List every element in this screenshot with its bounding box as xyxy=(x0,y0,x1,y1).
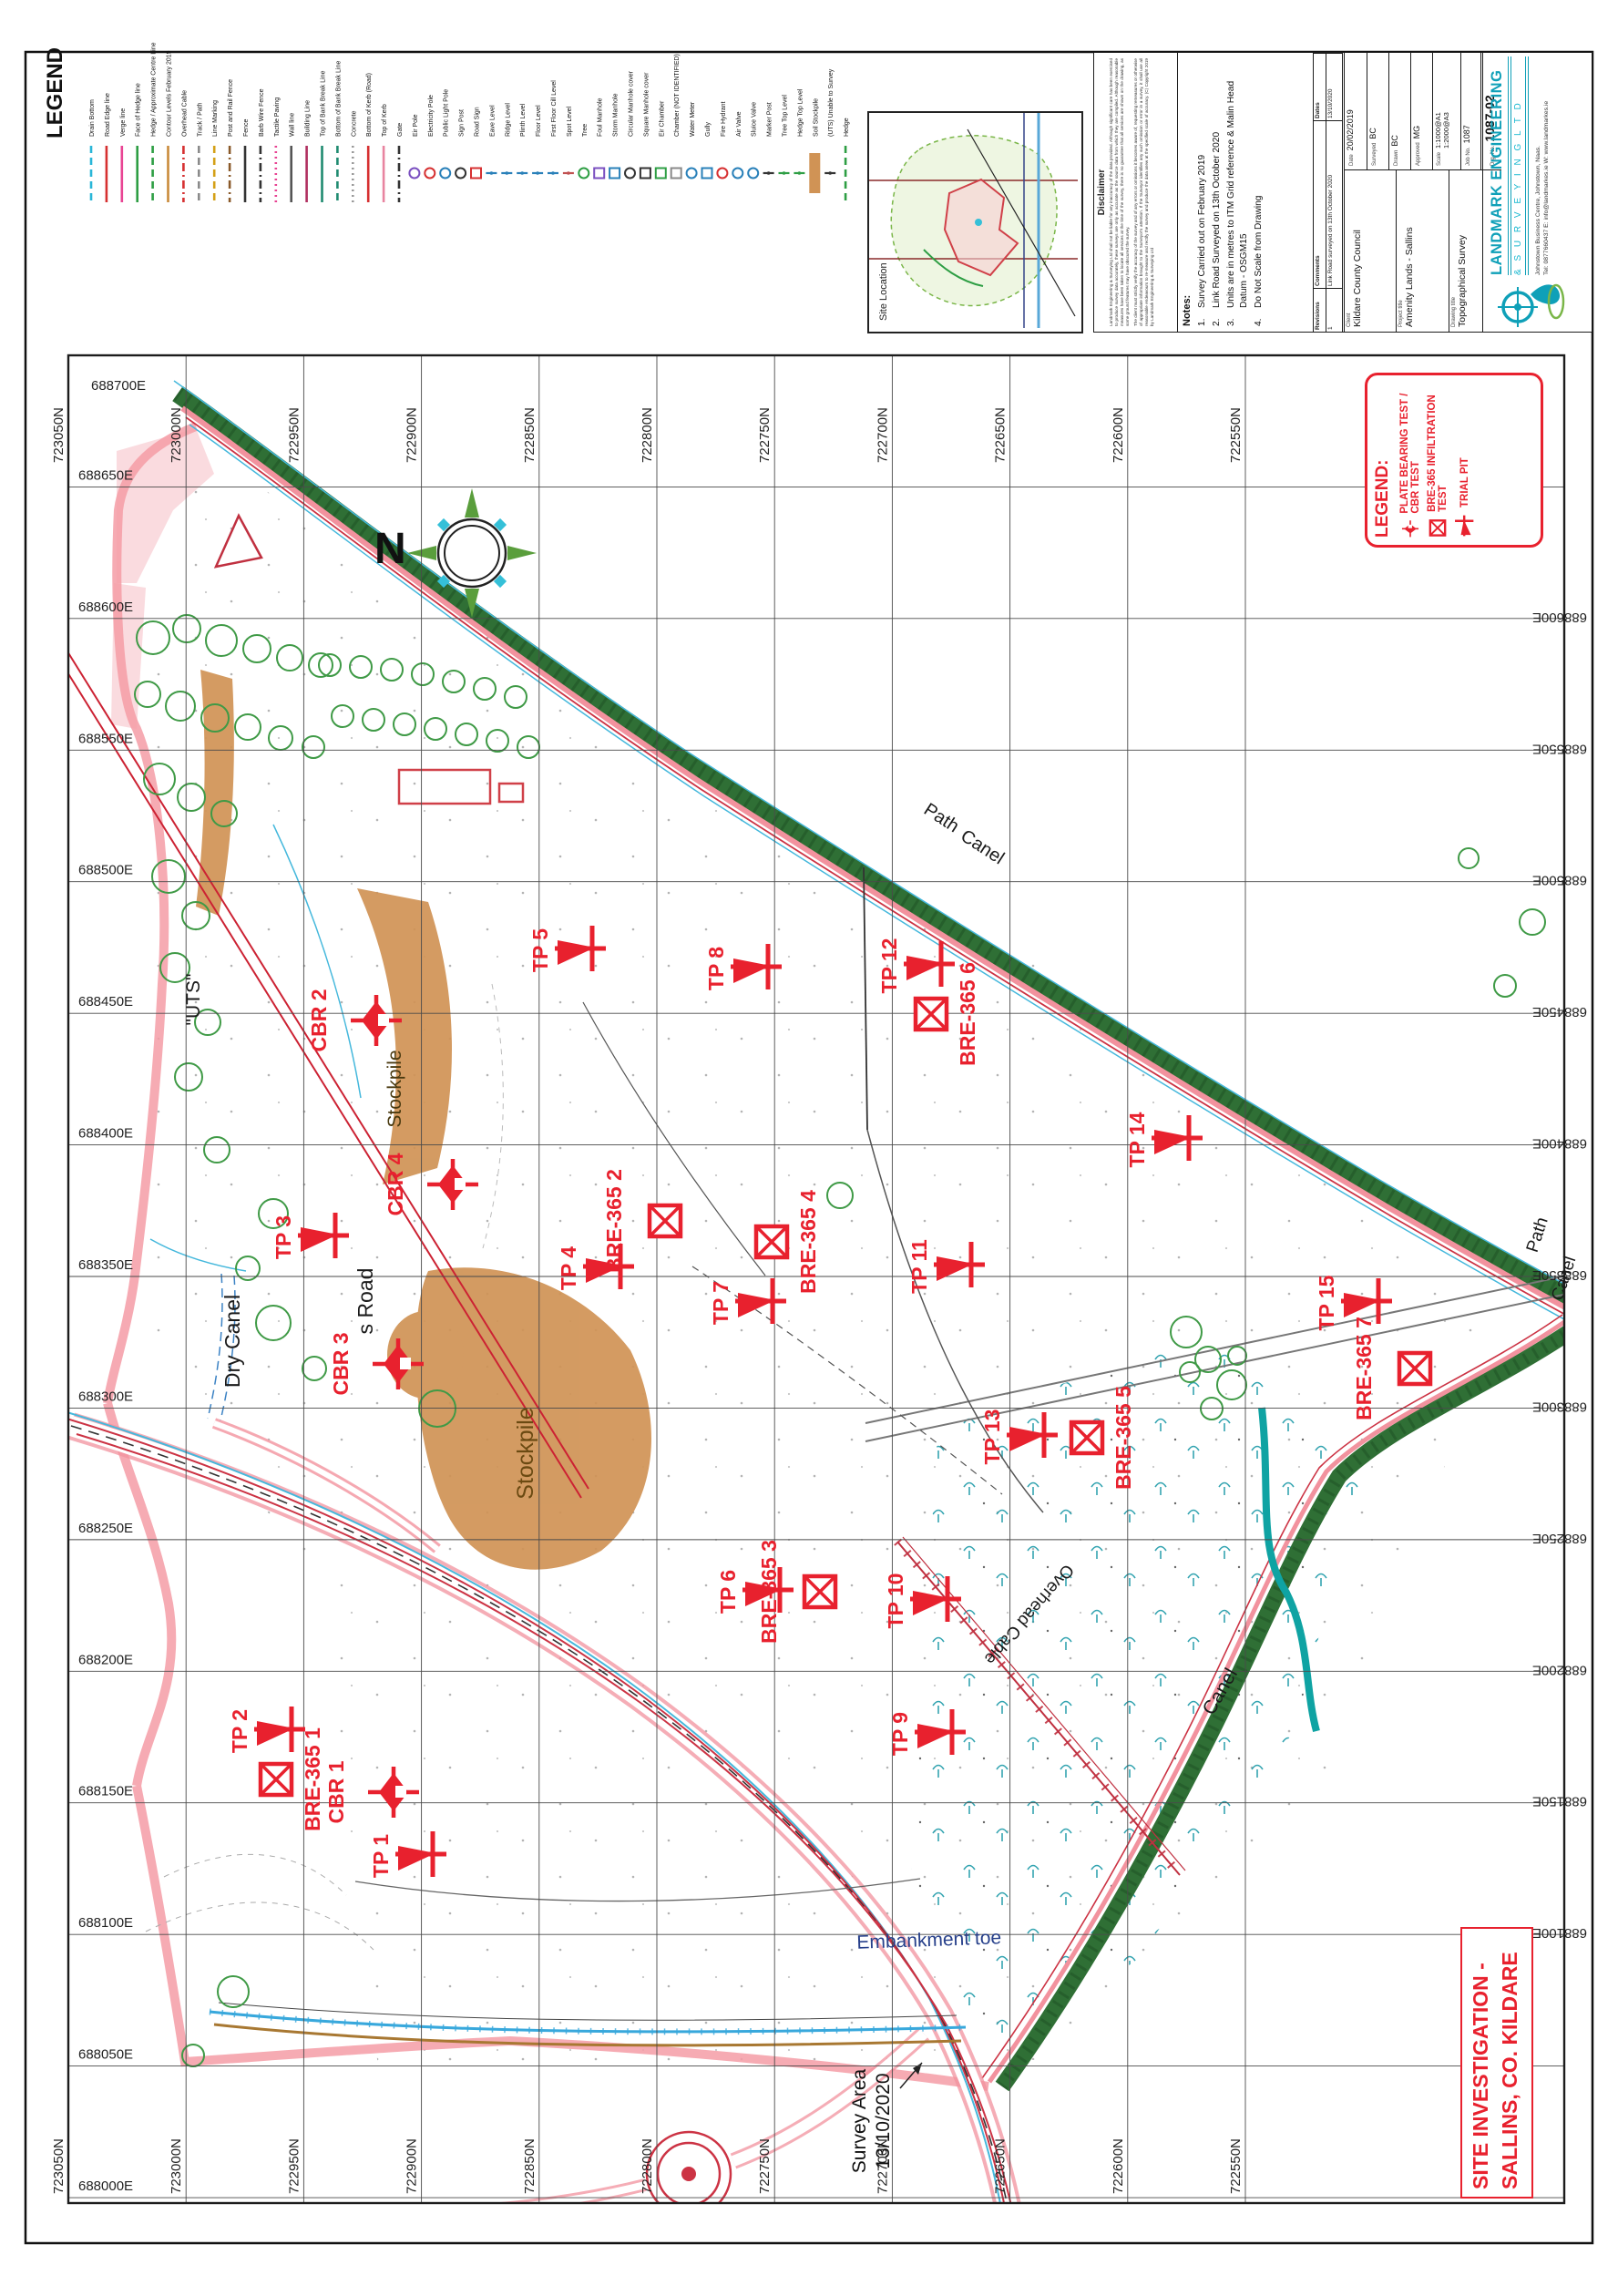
landmark-logo-icon xyxy=(1492,278,1571,329)
marker-label: TP 12 xyxy=(877,938,901,994)
sheet-title-line1: SITE INVESTIGATION - xyxy=(1466,1936,1495,2189)
marker-label: TP 13 xyxy=(980,1409,1004,1465)
marker-bre-icon xyxy=(916,999,947,1030)
marker-label: BRE-365 6 xyxy=(956,962,979,1066)
grid-label-northing: 722600N xyxy=(1111,407,1126,463)
grid-label-easting: 688650E xyxy=(78,467,133,483)
map-label: Path xyxy=(1523,1215,1552,1255)
legend-entry-label: Face of Hedge line xyxy=(136,83,142,137)
legend-entry-label: Overhead Cable xyxy=(181,90,188,137)
legend-sample xyxy=(656,169,666,179)
legend-entry-label: Fence xyxy=(243,118,250,137)
grid-label-easting-right: 688600E xyxy=(1532,610,1587,625)
legend-entry-label: Public Light Pole xyxy=(444,89,450,137)
legend-entry-label: Air Valve xyxy=(736,111,742,137)
marker-bre-icon xyxy=(804,1576,835,1607)
revision-number: 1 xyxy=(1326,288,1343,332)
sheet-title-box: SITE INVESTIGATION - SALLINS, CO. KILDAR… xyxy=(1460,1927,1533,2199)
grid-label-easting: 688450E xyxy=(78,994,133,1010)
bre365-icon xyxy=(1427,518,1449,538)
legend-entry-label: Soil Stockpile xyxy=(813,98,819,137)
surveyed-cell: SurveyedBC xyxy=(1367,53,1389,169)
legend-entry-label: Circular Manhole cover xyxy=(629,70,635,137)
legend-item-label: PLATE BEARING TEST / CBR TEST xyxy=(1399,383,1421,514)
marker-bre-icon xyxy=(756,1226,787,1257)
approved-cell: ApprovedMG xyxy=(1411,53,1433,169)
disclaimer-title: Disclaimer xyxy=(1097,58,1107,326)
legend-entry-label: Line Marking xyxy=(212,100,219,137)
legend-entry-label: First Floor Cill Level xyxy=(551,80,558,137)
survey-area-note: 13/10/2020 xyxy=(873,2073,894,2168)
map-legend-box: LEGEND: PLATE BEARING TEST / CBR TEST BR… xyxy=(1365,373,1543,548)
map-label: "UTS" xyxy=(183,974,204,1026)
grid-label-easting: 688250E xyxy=(78,1521,133,1536)
map-label: Path xyxy=(920,800,962,837)
legend-sample xyxy=(717,169,727,179)
legend-entry-label: Eave Level xyxy=(489,105,496,137)
trial-pit-icon xyxy=(1453,514,1477,538)
legend-entry-label: Hedge Top Level xyxy=(797,88,804,137)
marker-tp-icon xyxy=(254,1707,305,1752)
grid-label-northing: 722900N xyxy=(404,407,420,463)
legend-entry-label: Road Edge line xyxy=(105,93,111,137)
legend-sample xyxy=(456,169,466,179)
legend-item-bre365: BRE-365 INFILTRATION TEST xyxy=(1427,383,1449,538)
grid-label-easting-right: 688450E xyxy=(1532,1004,1587,1020)
grid-label-easting: 688150E xyxy=(78,1784,133,1799)
grid-label-easting-right: 688500E xyxy=(1532,873,1587,888)
map-canvas: 723050N723050N723000N723000N722950N72295… xyxy=(0,0,1618,2296)
legend-entry-label: Gully xyxy=(705,122,712,137)
legend-entry-label: Wall line xyxy=(290,113,296,137)
marker-label: BRE-365 5 xyxy=(1111,1386,1135,1490)
legend-entry-label: Drain Bottom xyxy=(89,99,96,137)
marker-label: TP 9 xyxy=(888,1712,912,1756)
legend-entry-label: Storm Manhole xyxy=(613,93,620,137)
company-name: LANDMARK ENGINEERING xyxy=(1489,56,1506,275)
grid-label-easting: 688550E xyxy=(78,731,133,746)
disclaimer-paragraph-2: The client must strictly verify the accu… xyxy=(1133,58,1155,326)
grid-label-northing: 723050N xyxy=(51,2138,67,2194)
map-legend-title: LEGEND: xyxy=(1373,383,1393,538)
plate-bearing-icon xyxy=(1398,520,1422,538)
legend-entry-label: Road Sign xyxy=(475,107,481,137)
marker-label: TP 8 xyxy=(704,947,728,990)
logo-rule xyxy=(1525,56,1529,275)
legend-entry-label: Tree xyxy=(582,124,589,137)
legend-entry-label: Spot Level xyxy=(567,106,573,137)
revision-date: 13/10/2020 xyxy=(1326,53,1343,120)
legend-entry-label: Sluice Valve xyxy=(752,102,758,137)
project-cell: Project title Amenity Lands - Sallins xyxy=(1397,170,1449,332)
legend-entry-label: Chamber (NOT IDENTIFIED) xyxy=(674,54,681,137)
legend-entry-label: Eir Pole xyxy=(413,114,419,137)
notes-title: Notes: xyxy=(1182,58,1193,326)
legend-entry-label: Hedge / Approximate Centre Line xyxy=(151,42,158,137)
legend-entry-label: (UTS) Unable to Survey xyxy=(828,68,835,137)
marker-bre-icon xyxy=(1071,1422,1102,1453)
marker-label: TP 6 xyxy=(716,1570,740,1614)
marker-label: BRE-365 3 xyxy=(757,1540,781,1644)
drawn-cell: DrawnBC xyxy=(1389,53,1411,169)
marker-label: TP 7 xyxy=(709,1281,732,1325)
legend-entry-label: Gate xyxy=(397,123,404,137)
legend-entry-label: Tactile Paving xyxy=(274,97,281,137)
grid-label-easting-right: 688550E xyxy=(1532,741,1587,756)
marker-bre-icon xyxy=(1399,1353,1430,1384)
legend-sample xyxy=(440,169,450,179)
legend-entry-label: Building Line xyxy=(305,100,312,137)
marker-label: TP 11 xyxy=(907,1239,931,1294)
grid-label-easting-right: 688100E xyxy=(1532,1925,1587,1941)
company-address: Johnstown Business Centre, Johnstown, Na… xyxy=(1534,56,1551,275)
note-item: 2.Link Road Surveyed on 13th October 202… xyxy=(1211,58,1223,326)
title-block: Disclaimer Landmark Engineering & Survey… xyxy=(1093,52,1592,333)
job-cell: Job No.1087 xyxy=(1461,53,1481,169)
grid-label-easting: 688600E xyxy=(78,600,133,615)
site-location-map xyxy=(869,113,1078,328)
legend-entry-label: Tree Top Level xyxy=(783,95,789,137)
legend-entry-label: Concrete xyxy=(351,110,357,137)
grid-label-northing: 723000N xyxy=(169,407,184,463)
map-label: s Road xyxy=(353,1268,377,1335)
map-label: Dry Canel xyxy=(220,1295,244,1388)
marker-label: TP 10 xyxy=(884,1573,907,1629)
grid-label-easting-right: 688150E xyxy=(1532,1794,1587,1809)
grid-label-northing: 722950N xyxy=(286,407,302,463)
legend-sample xyxy=(748,169,758,179)
marker-label: CBR 2 xyxy=(307,989,331,1051)
revisions-header: Revisions xyxy=(1314,288,1326,332)
grid-label-easting: 688500E xyxy=(78,863,133,878)
legend-sample xyxy=(687,169,697,179)
grid-label-easting-right: 688250E xyxy=(1532,1531,1587,1546)
grid-label-northing: 722550N xyxy=(1228,407,1244,463)
grid-label-northing: 722900N xyxy=(404,2138,420,2194)
legend-entry-label: Post and Rail Fence xyxy=(228,79,234,137)
grid-label-northing: 722850N xyxy=(522,2138,538,2194)
legend-sample xyxy=(809,153,820,193)
site-location-box: Site Location xyxy=(867,111,1083,333)
client-name: Kildare County Council xyxy=(1352,175,1363,327)
legend-item-plate-bearing: PLATE BEARING TEST / CBR TEST xyxy=(1398,383,1422,538)
marker-label: BRE-365 2 xyxy=(602,1169,626,1273)
grid-label-easting: 688100E xyxy=(78,1915,133,1931)
legend-entry-label: Plinth Level xyxy=(520,103,527,137)
legend-entry-label: Top of Bank Break Line xyxy=(321,71,327,137)
legend-entry-label: Water Meter xyxy=(690,101,696,137)
grid-label-northing: 722800N xyxy=(640,2138,655,2194)
grid-label-northing: 722600N xyxy=(1111,2138,1126,2194)
disclaimer-section: Disclaimer Landmark Engineering & Survey… xyxy=(1094,53,1178,332)
legend-item-label: TRIAL PIT xyxy=(1459,457,1470,507)
grid-label-easting: 688400E xyxy=(78,1126,133,1142)
grid-label-northing: 722550N xyxy=(1228,2138,1244,2194)
marker-label: TP 15 xyxy=(1315,1275,1338,1330)
project-info: Client Kildare County Council Project ti… xyxy=(1345,53,1483,332)
legend-sample xyxy=(609,169,620,179)
legend-entry-label: Ridge Level xyxy=(505,103,511,137)
grid-label-easting: 688350E xyxy=(78,1257,133,1273)
survey-drawing-sheet: 723050N723050N723000N723000N722950N72295… xyxy=(0,0,1618,2296)
legend-sample xyxy=(579,169,589,179)
legend-entry-label: Verge line xyxy=(120,108,127,137)
grid-label-northing: 722800N xyxy=(640,407,655,463)
grid-label-easting: 688300E xyxy=(78,1389,133,1404)
grid-label-easting: 688000E xyxy=(78,2178,133,2194)
legend-sample xyxy=(625,169,635,179)
revisions-table: Revisions Comments Dates 1 Link Road sur… xyxy=(1314,53,1345,332)
legend-sample xyxy=(594,169,604,179)
grid-label-northing: 722750N xyxy=(757,407,773,463)
legend-entry-label: Sign Post xyxy=(459,109,466,137)
legend-entry-label: Floor Level xyxy=(536,105,542,137)
marker-label: TP 3 xyxy=(271,1215,295,1259)
legend-sample xyxy=(471,169,481,179)
legend-entry-label: Marker Post xyxy=(767,102,773,137)
date-cell: Date20/02/2019 xyxy=(1345,53,1367,169)
grid-label-easting: 688200E xyxy=(78,1652,133,1667)
legend-entry-label: Square Manhole cover xyxy=(643,72,650,137)
legend-sample xyxy=(702,169,712,179)
grid-label-easting: 688700E xyxy=(91,378,146,394)
grid-label-northing: 722650N xyxy=(993,2138,1009,2194)
client-cell: Client Kildare County Council xyxy=(1345,170,1398,332)
grid-label-easting-right: 688200E xyxy=(1532,1662,1587,1677)
legend-entry-label: Bottom of Bank Break Line xyxy=(335,61,342,137)
marker-label: TP 2 xyxy=(228,1709,251,1753)
survey-area-note: Survey Area xyxy=(849,2068,870,2173)
marker-label: TP 1 xyxy=(369,1834,393,1878)
grid-label-northing: 723000N xyxy=(169,2138,184,2194)
marker-label: TP 4 xyxy=(557,1246,580,1290)
sheet-legend-strip: LEGENDDrain BottomRoad Edge lineVerge li… xyxy=(43,42,850,202)
legend-entry-label: Barb Wire Fence xyxy=(259,88,265,137)
grid-label-northing: 722750N xyxy=(757,2138,773,2194)
note-item: 3.Units are in metres to ITM Grid refere… xyxy=(1225,58,1250,326)
sheet-title-line2: SALLINS, CO. KILDARE xyxy=(1495,1936,1524,2189)
grid-label-easting-right: 688400E xyxy=(1532,1136,1587,1152)
map-label: Stockpile xyxy=(384,1050,405,1127)
grid-label-northing: 722700N xyxy=(875,407,890,463)
marker-label: TP 14 xyxy=(1125,1112,1149,1167)
map-label: Stockpile xyxy=(513,1407,538,1499)
marker-label: CBR 1 xyxy=(324,1760,348,1823)
drawing-name: Topographical Survey xyxy=(1457,175,1468,327)
marker-bre-icon xyxy=(650,1205,681,1236)
scale-cell: Scale1:1000@A11:2000@A3 xyxy=(1433,53,1461,169)
marker-label: BRE-365 7 xyxy=(1352,1317,1376,1420)
project-name: Amenity Lands - Sallins xyxy=(1404,175,1415,327)
legend-sample xyxy=(425,169,435,179)
legend-entry-label: Bottom of Kerb (Road) xyxy=(366,73,373,137)
legend-item-trial-pit: TRIAL PIT xyxy=(1453,383,1477,538)
comments-header: Comments xyxy=(1314,120,1326,288)
grid-label-northing: 722950N xyxy=(286,2138,302,2194)
logo-rule xyxy=(1508,56,1511,275)
disclaimer-paragraph-1: Landmark Engineering & Surveying Ltd sha… xyxy=(1109,58,1131,326)
grid-label-easting-right: 688300E xyxy=(1532,1399,1587,1414)
map-geography xyxy=(26,381,1594,2242)
marker-label: CBR 4 xyxy=(384,1153,407,1215)
company-logo-block: LANDMARK ENGINEERING & S U R V E Y I N G… xyxy=(1483,53,1592,332)
legend-item-label: BRE-365 INFILTRATION TEST xyxy=(1427,383,1449,512)
grid-label-northing: 723050N xyxy=(51,407,67,463)
site-location-label: Site Location xyxy=(878,262,889,321)
legend-entry-label: Track / Path xyxy=(197,102,203,137)
legend-entry-label: Hedge xyxy=(844,118,850,137)
legend-sample xyxy=(409,169,419,179)
notes-section: Notes: 1.Survey Carried out on February … xyxy=(1178,53,1314,332)
company-name-2: & S U R V E Y I N G L T D xyxy=(1513,56,1523,275)
note-item: 1.Survey Carried out on February 2019 xyxy=(1196,58,1208,326)
marker-label: BRE-365 4 xyxy=(796,1190,820,1294)
grid-label-northing: 722650N xyxy=(993,407,1009,463)
legend-sample xyxy=(732,169,742,179)
grid-label-northing: 722850N xyxy=(522,407,538,463)
legend-entry-label: Top of Kerb xyxy=(382,104,388,137)
legend-entry-label: Fire Hydrant xyxy=(721,101,727,137)
legend-entry-label: Eir Chamber xyxy=(659,100,665,137)
grid-label-easting: 688050E xyxy=(78,2047,133,2063)
marker-label: TP 5 xyxy=(528,928,552,972)
revision-comment: Link Road surveyed on 13th October 2020 xyxy=(1326,120,1343,288)
dates-header: Dates xyxy=(1314,53,1326,120)
note-item: 4.Do Not Scale from Drawing xyxy=(1253,58,1265,326)
legend-sample xyxy=(640,169,650,179)
legend-sample xyxy=(671,169,681,179)
sheet-legend-title: LEGEND xyxy=(43,47,67,138)
legend-entry-label: Electricity Pole xyxy=(428,95,435,137)
north-letter: N xyxy=(374,524,406,574)
marker-label: BRE-365 1 xyxy=(301,1727,324,1831)
legend-entry-label: Foul Manhole xyxy=(598,97,604,137)
map-label: Canel xyxy=(957,826,1008,869)
legend-entry-label: Contour Levels February 2019 xyxy=(167,50,173,137)
marker-bre-icon xyxy=(261,1764,292,1795)
marker-label: CBR 3 xyxy=(329,1332,353,1395)
